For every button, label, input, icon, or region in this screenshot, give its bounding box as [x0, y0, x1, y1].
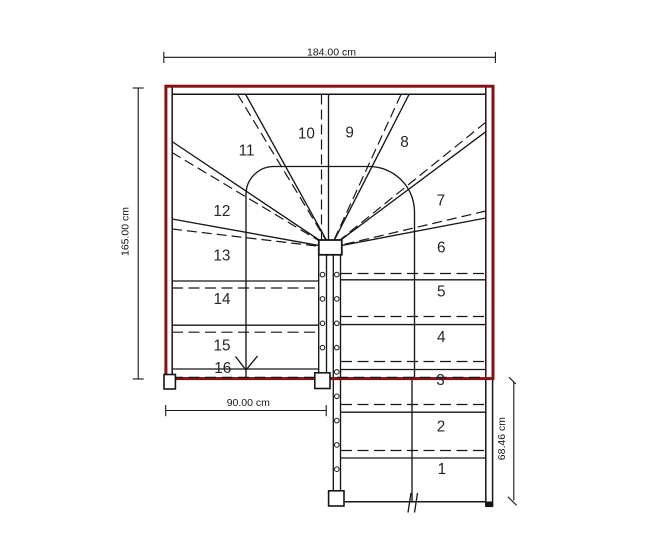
svg-text:15: 15 — [213, 338, 230, 355]
svg-text:165.00 cm: 165.00 cm — [120, 207, 132, 256]
svg-text:7: 7 — [437, 192, 446, 209]
svg-text:16: 16 — [214, 360, 231, 377]
svg-text:5: 5 — [437, 284, 446, 301]
svg-text:1: 1 — [438, 461, 447, 478]
svg-text:11: 11 — [239, 143, 255, 160]
svg-text:14: 14 — [213, 291, 231, 308]
svg-text:12: 12 — [213, 203, 230, 220]
svg-text:68.46 cm: 68.46 cm — [496, 417, 508, 460]
svg-text:2: 2 — [437, 419, 446, 436]
svg-text:6: 6 — [437, 240, 446, 257]
svg-text:3: 3 — [436, 372, 445, 389]
svg-text:10: 10 — [298, 126, 315, 143]
svg-text:90.00 cm: 90.00 cm — [227, 397, 270, 409]
svg-text:9: 9 — [345, 125, 354, 142]
svg-text:8: 8 — [400, 134, 409, 151]
svg-text:4: 4 — [437, 329, 446, 346]
svg-text:13: 13 — [213, 248, 230, 265]
svg-text:184.00 cm: 184.00 cm — [307, 47, 356, 59]
